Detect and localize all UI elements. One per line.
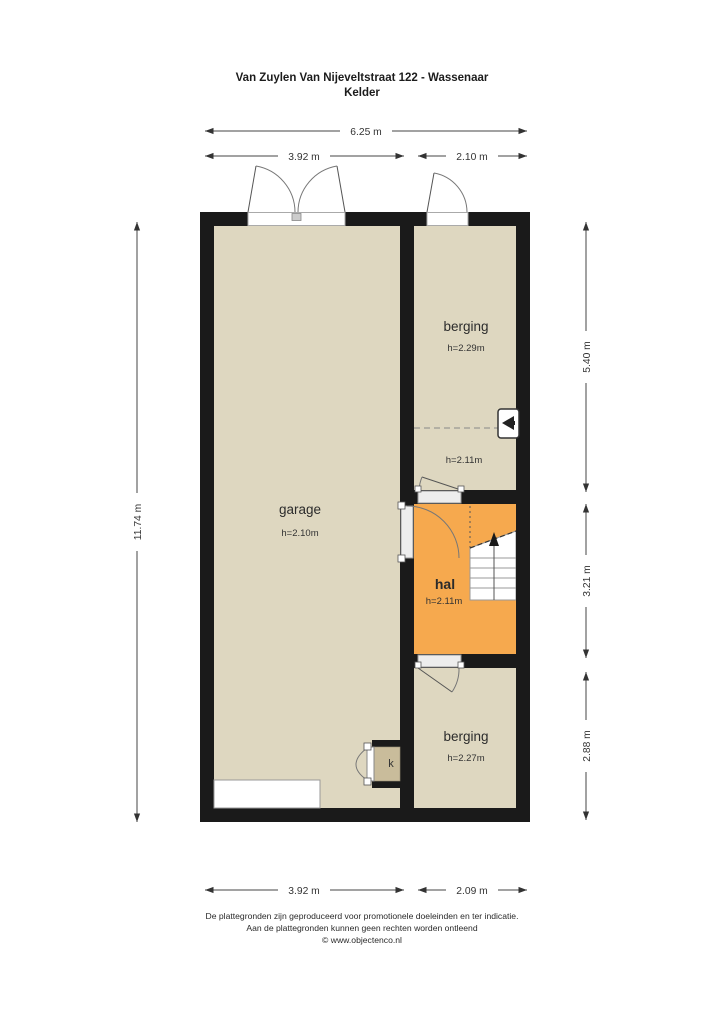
room-height-berging-top: h=2.29m [447, 343, 484, 354]
hal-berging-bottom-door-threshold [418, 655, 461, 667]
dimension-right-bottom: 2.88 m [579, 672, 593, 820]
hal-garage-door-threshold [401, 506, 413, 558]
room-height-hal: h=2.11m [426, 596, 463, 607]
dimension-bottom-left: 3.92 m [205, 883, 404, 897]
svg-text:11.74 m: 11.74 m [133, 504, 144, 540]
room-label-hal: hal [435, 576, 455, 592]
double-door-meeting-post [292, 214, 301, 221]
floorplan-page: Van Zuylen Van Nijeveltstraat 122 - Wass… [0, 0, 724, 1024]
wall [516, 212, 530, 822]
wall [372, 740, 400, 747]
closet-door-leaf [367, 747, 374, 781]
dimension-left-total: 11.74 m [130, 222, 144, 822]
closet-door-hinge [364, 743, 371, 750]
ventilation-unit-icon [498, 409, 519, 438]
wall [372, 781, 400, 788]
svg-text:3.21 m: 3.21 m [582, 565, 593, 596]
dimension-top-total: 6.25 m [205, 124, 527, 138]
room-height-garage: h=2.10m [281, 528, 318, 539]
svg-text:6.25 m: 6.25 m [350, 127, 381, 138]
closet-door-hinge [364, 778, 371, 785]
svg-text:3.92 m: 3.92 m [288, 886, 319, 897]
dimension-bottom-right: 2.09 m [418, 883, 527, 897]
room-height-berging-top-low: h=2.11m [446, 455, 483, 466]
dimension-top-left: 3.92 m [205, 149, 404, 163]
garage-fixture [214, 780, 320, 808]
floor-plan: garage h=2.10m berging h=2.29m h=2.11m h… [0, 0, 724, 1024]
room-height-berging-bottom: h=2.27m [447, 753, 484, 764]
closet-label: k [388, 758, 394, 770]
wall [200, 212, 214, 822]
footer-line-3: © www.objectenco.nl [0, 935, 724, 947]
berging-entry-door [427, 173, 467, 212]
room-garage [214, 226, 400, 808]
footer-line-2: Aan de plattegronden kunnen geen rechten… [0, 923, 724, 935]
svg-text:3.92 m: 3.92 m [288, 152, 319, 163]
dimension-right-middle: 3.21 m [579, 504, 593, 658]
wall [200, 808, 530, 822]
hal-berging-top-door-threshold [418, 491, 461, 503]
room-label-berging-top: berging [443, 319, 488, 334]
closet-floor [374, 747, 400, 781]
svg-text:2.88 m: 2.88 m [582, 730, 593, 761]
svg-text:2.10 m: 2.10 m [456, 152, 487, 163]
garage-double-door [248, 166, 345, 212]
footer-disclaimer: De plattegronden zijn geproduceerd voor … [0, 911, 724, 946]
svg-text:5.40 m: 5.40 m [582, 341, 593, 372]
room-floors [214, 226, 516, 808]
dimension-top-right: 2.10 m [418, 149, 527, 163]
svg-text:2.09 m: 2.09 m [456, 886, 487, 897]
single-door-threshold [427, 213, 468, 226]
room-berging-top [414, 226, 516, 490]
footer-line-1: De plattegronden zijn geproduceerd voor … [0, 911, 724, 923]
room-label-garage: garage [279, 502, 321, 517]
room-label-berging-bottom: berging [443, 729, 488, 744]
dimension-right-top: 5.40 m [579, 222, 593, 492]
